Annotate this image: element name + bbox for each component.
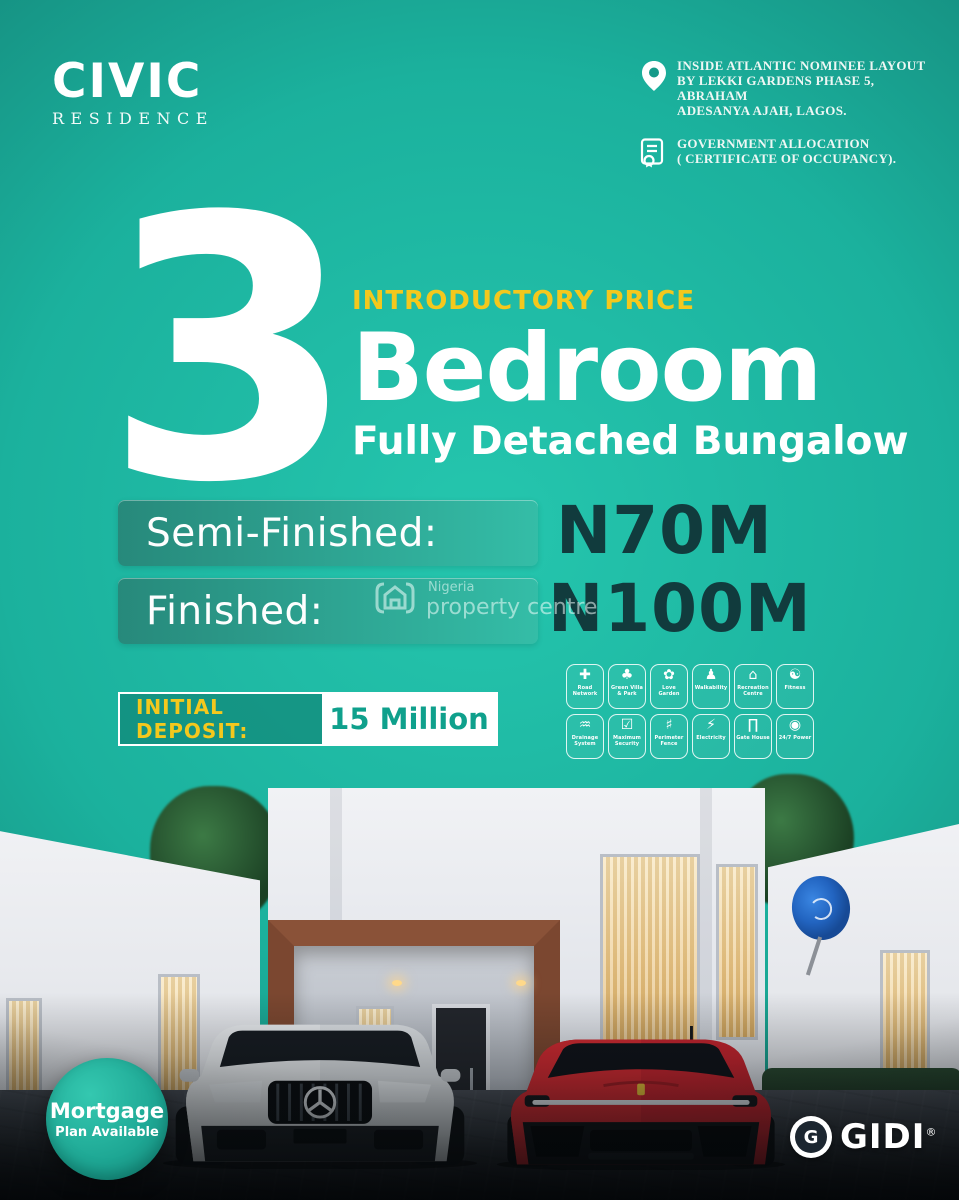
- amenities-grid: ✚Road Network♣Green Villa & Park✿Love Ga…: [566, 664, 814, 759]
- amenity-label: Maximum Security: [609, 736, 645, 747]
- window: [880, 950, 930, 1082]
- location-info: INSIDE ATLANTIC NOMINEE LAYOUT BY LEKKI …: [640, 58, 945, 118]
- red-suv-image: [492, 1026, 790, 1170]
- gidi-emblem-icon: G: [790, 1116, 832, 1158]
- green-villa-park-icon: ♣: [609, 665, 645, 686]
- amenity-label: Road Network: [567, 686, 603, 697]
- location-text: INSIDE ATLANTIC NOMINEE LAYOUT BY LEKKI …: [677, 58, 945, 118]
- allocation-info: GOVERNMENT ALLOCATION ( CERTIFICATE OF O…: [640, 136, 945, 172]
- drainage-system-icon: ♒: [567, 715, 603, 736]
- hero-text: INTRODUCTORY PRICE Bedroom Fully Detache…: [352, 288, 909, 461]
- electricity-icon: ⚡: [693, 715, 729, 736]
- finished-label: Finished:: [146, 589, 323, 634]
- white-suv-image: [158, 1012, 482, 1169]
- amenity-label: Perimeter Fence: [651, 736, 687, 747]
- hero-title: Bedroom: [352, 322, 909, 416]
- amenity-label: Green Villa & Park: [609, 686, 645, 697]
- brand-logo: CIVIC RESIDENCE: [52, 58, 214, 127]
- watermark-text: Nigeria property centre: [426, 581, 597, 619]
- publisher-logo: G GIDI®: [790, 1116, 937, 1158]
- amenity-love-garden: ✿Love Garden: [650, 664, 688, 709]
- location-line3: ADESANYA AJAH, LAGOS.: [677, 103, 945, 118]
- mortgage-badge: Mortgage Plan Available: [46, 1058, 168, 1180]
- price-bar-semi-finished: Semi-Finished:: [118, 500, 538, 566]
- love-garden-icon: ✿: [651, 665, 687, 686]
- location-pin-icon: [640, 60, 668, 96]
- amenity-label: 24/7 Power: [777, 736, 813, 742]
- amenity-24-7-power: ◉24/7 Power: [776, 714, 814, 759]
- maximum-security-icon: ☑: [609, 715, 645, 736]
- walkability-icon: ♟: [693, 665, 729, 686]
- intro-price-label: INTRODUCTORY PRICE: [352, 288, 909, 314]
- amenity-walkability: ♟Walkability: [692, 664, 730, 709]
- brand-name: CIVIC: [52, 58, 214, 105]
- watermark: Nigeria property centre: [374, 580, 597, 620]
- amenity-label: Love Garden: [651, 686, 687, 697]
- wall-lamp: [516, 980, 526, 986]
- semi-finished-price: N70M: [556, 498, 773, 564]
- registered-mark: ®: [925, 1126, 937, 1139]
- amenity-label: Gate House: [735, 736, 771, 742]
- amenity-label: Fitness: [777, 686, 813, 692]
- location-line1: INSIDE ATLANTIC NOMINEE LAYOUT: [677, 58, 945, 73]
- amenity-label: Recreation Centre: [735, 686, 771, 697]
- amenity-road-network: ✚Road Network: [566, 664, 604, 709]
- allocation-line2: ( CERTIFICATE OF OCCUPANCY).: [677, 151, 896, 166]
- amenity-drainage-system: ♒Drainage System: [566, 714, 604, 759]
- publisher-name: GIDI®: [840, 1117, 937, 1157]
- fitness-icon: ☯: [777, 665, 813, 686]
- amenity-label: Walkability: [693, 686, 729, 692]
- house-logo-icon: [374, 580, 416, 620]
- certificate-icon: [640, 138, 668, 172]
- watermark-top: Nigeria: [428, 581, 597, 594]
- perimeter-fence-icon: ♯: [651, 715, 687, 736]
- allocation-text: GOVERNMENT ALLOCATION ( CERTIFICATE OF O…: [677, 136, 896, 166]
- recreation-centre-icon: ⌂: [735, 665, 771, 686]
- amenity-maximum-security: ☑Maximum Security: [608, 714, 646, 759]
- amenity-electricity: ⚡Electricity: [692, 714, 730, 759]
- initial-deposit-label: INITIAL DEPOSIT:: [120, 694, 322, 744]
- amenity-recreation-centre: ⌂Recreation Centre: [734, 664, 772, 709]
- mortgage-line2: Plan Available: [55, 1125, 159, 1140]
- mortgage-line1: Mortgage: [50, 1099, 164, 1123]
- gidi-emblem-letter: G: [795, 1121, 827, 1153]
- amenity-perimeter-fence: ♯Perimeter Fence: [650, 714, 688, 759]
- wall-lamp: [392, 980, 402, 986]
- window: [600, 854, 700, 1046]
- publisher-name-text: GIDI: [840, 1117, 925, 1157]
- allocation-line1: GOVERNMENT ALLOCATION: [677, 136, 896, 151]
- location-line2: BY LEKKI GARDENS PHASE 5, ABRAHAM: [677, 73, 945, 103]
- watermark-bottom: property centre: [426, 597, 597, 619]
- amenity-fitness: ☯Fitness: [776, 664, 814, 709]
- amenity-gate-house: ∏Gate House: [734, 714, 772, 759]
- initial-deposit-value: 15 Million: [322, 694, 496, 744]
- bedroom-count: 3: [104, 200, 350, 504]
- amenity-label: Drainage System: [567, 736, 603, 747]
- window: [716, 864, 758, 1040]
- hero-subtitle: Fully Detached Bungalow: [352, 422, 909, 461]
- gate-house-icon: ∏: [735, 715, 771, 736]
- 24-7-power-icon: ◉: [777, 715, 813, 736]
- amenity-label: Electricity: [693, 736, 729, 742]
- property-flyer: CIVIC RESIDENCE INSIDE ATLANTIC NOMINEE …: [0, 0, 959, 1200]
- amenity-green-villa-park: ♣Green Villa & Park: [608, 664, 646, 709]
- road-network-icon: ✚: [567, 665, 603, 686]
- header-info: INSIDE ATLANTIC NOMINEE LAYOUT BY LEKKI …: [640, 58, 945, 190]
- initial-deposit: INITIAL DEPOSIT: 15 Million: [118, 692, 498, 746]
- brand-subtitle: RESIDENCE: [52, 111, 214, 127]
- semi-finished-label: Semi-Finished:: [146, 511, 438, 556]
